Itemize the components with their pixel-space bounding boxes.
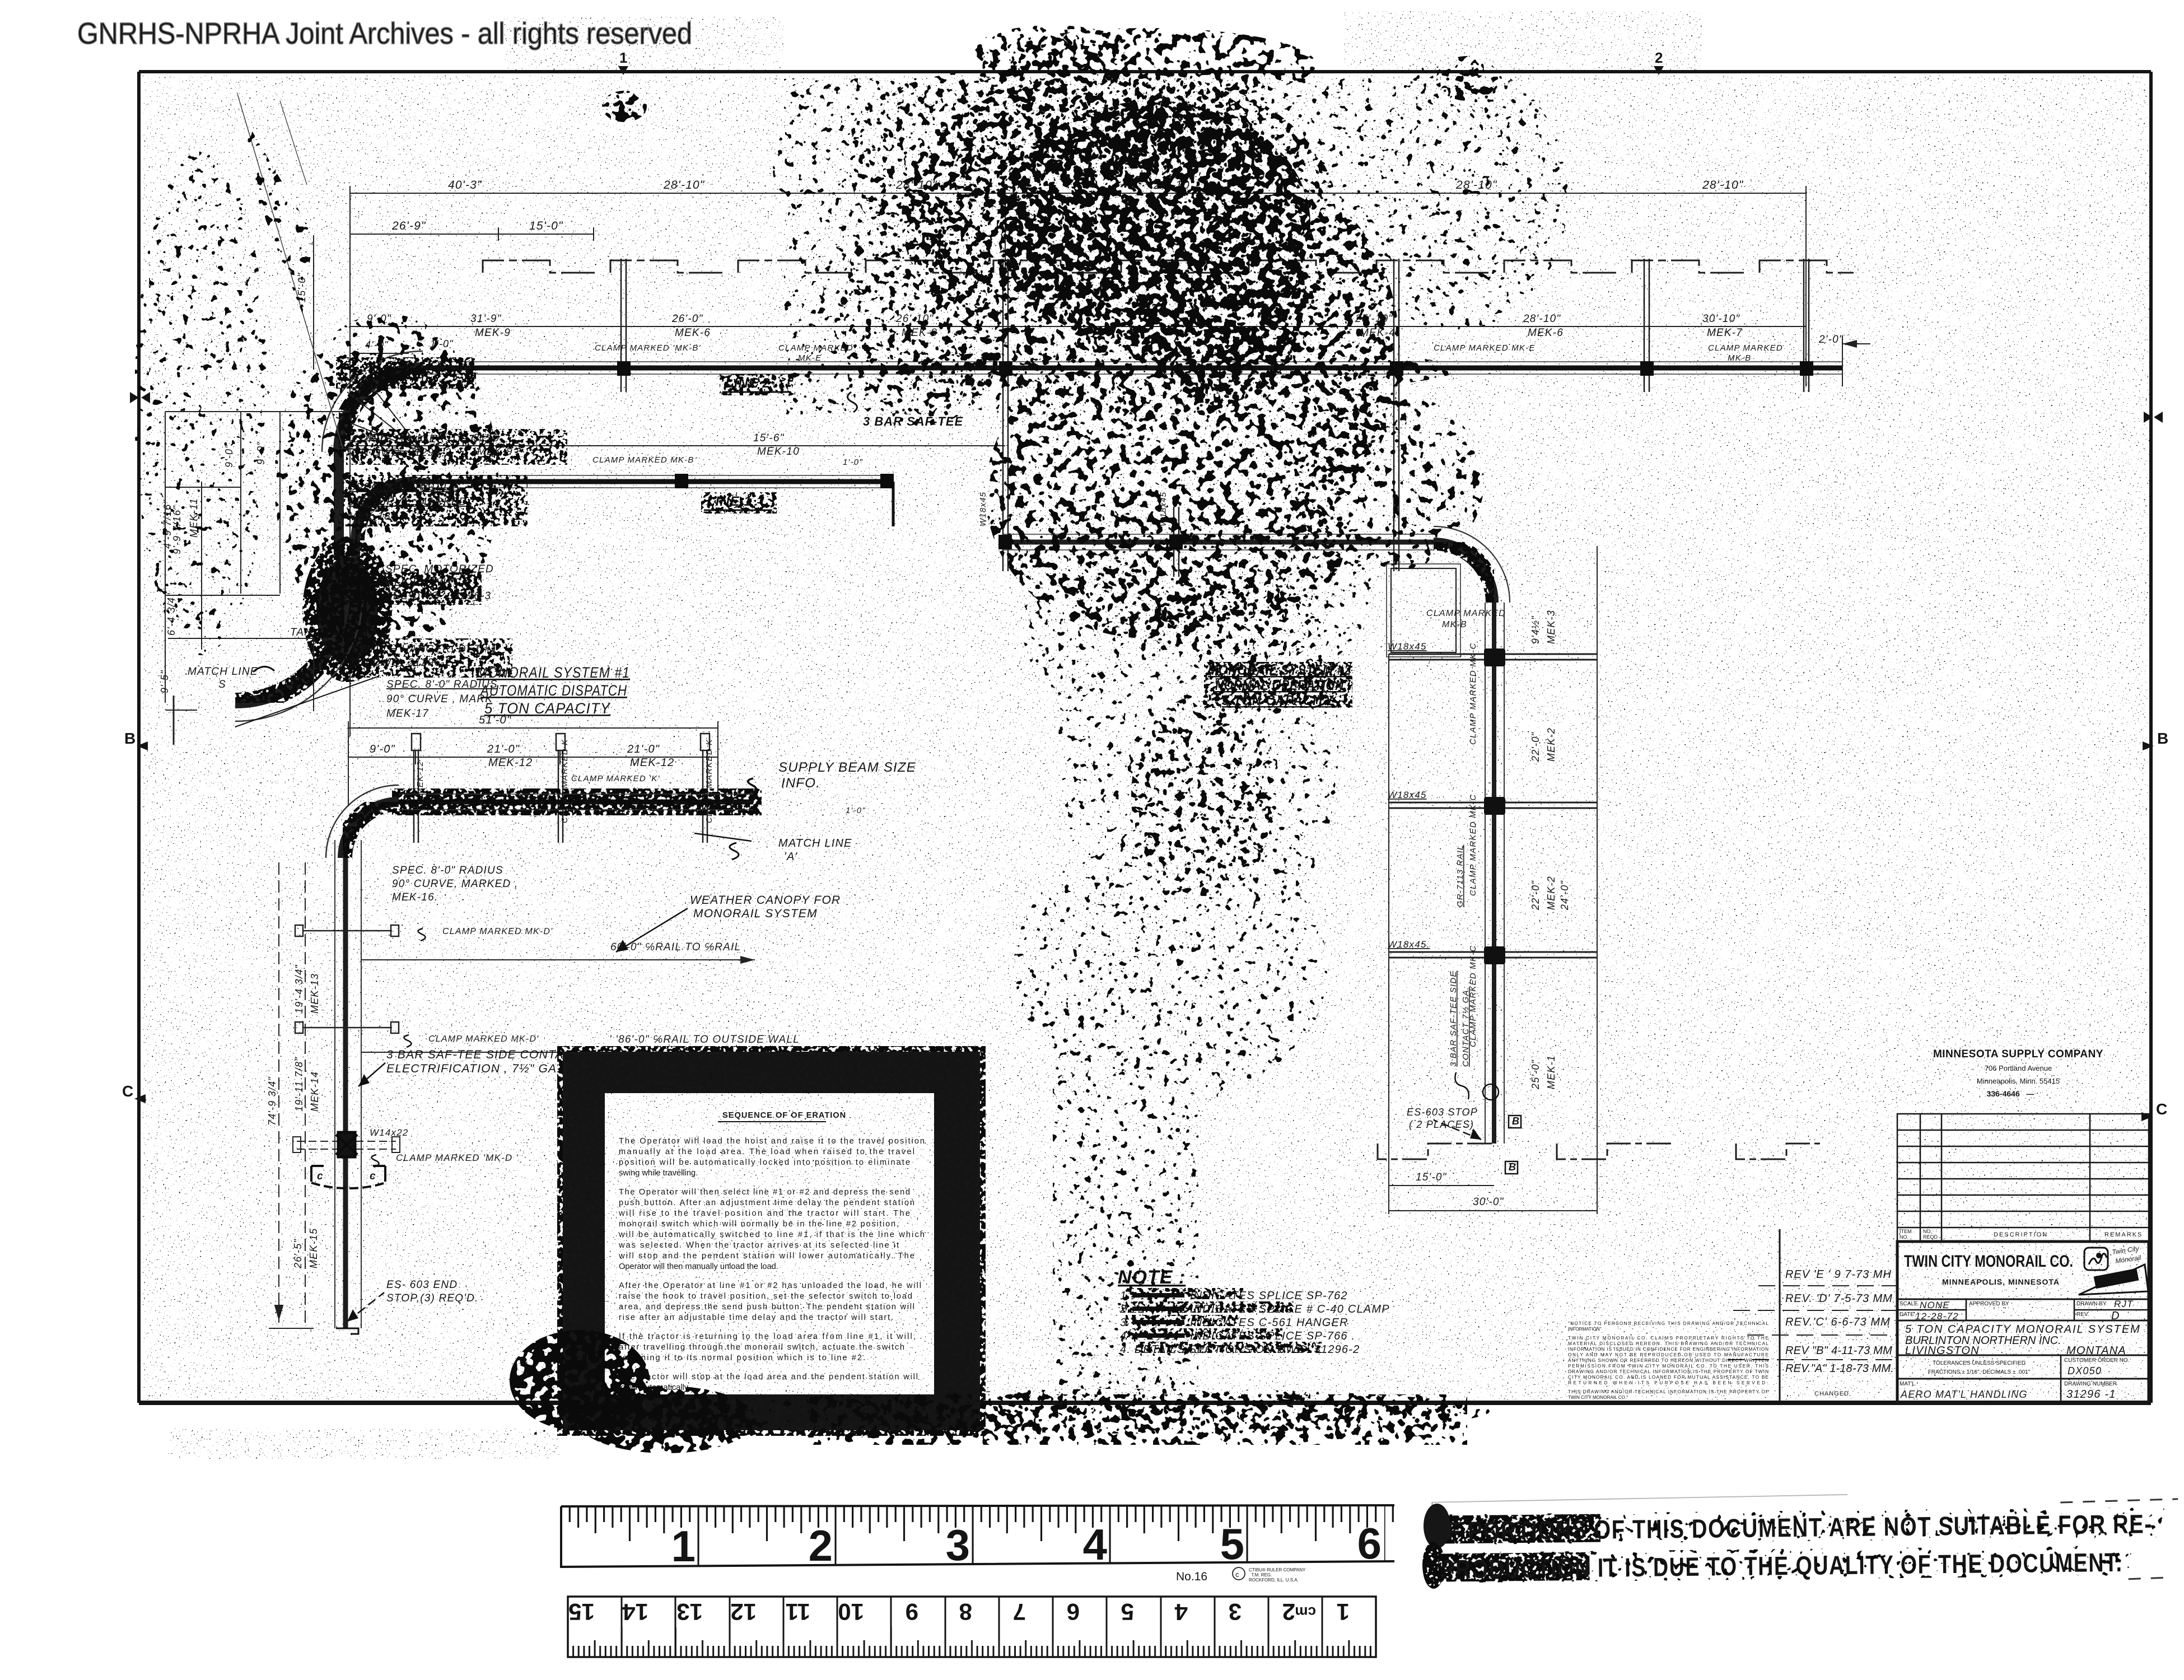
svg-text:4: 4 bbox=[1174, 1599, 1188, 1625]
svg-text:11: 11 bbox=[786, 1599, 810, 1625]
svg-text:cm: cm bbox=[1295, 1604, 1316, 1621]
svg-text:5: 5 bbox=[1220, 1519, 1244, 1569]
svg-text:6: 6 bbox=[1357, 1519, 1382, 1568]
svg-text:12: 12 bbox=[730, 1599, 757, 1625]
svg-text:C: C bbox=[122, 1082, 133, 1100]
svg-text:3: 3 bbox=[1229, 1599, 1242, 1625]
svg-text:8: 8 bbox=[959, 1599, 972, 1625]
svg-text:7: 7 bbox=[1013, 1599, 1026, 1625]
svg-text:1: 1 bbox=[1337, 1599, 1350, 1625]
svg-text:B: B bbox=[124, 730, 136, 747]
svg-text:B: B bbox=[2157, 730, 2168, 747]
svg-text:2: 2 bbox=[809, 1521, 833, 1570]
svg-text:T.M. REG.: T.M. REG. bbox=[1249, 1572, 1272, 1578]
svg-text:5: 5 bbox=[1121, 1599, 1134, 1625]
svg-text:ROCKFORD, ILL. U.S.A.: ROCKFORD, ILL. U.S.A. bbox=[1249, 1578, 1299, 1583]
svg-text:10: 10 bbox=[838, 1599, 864, 1625]
svg-text:6: 6 bbox=[1067, 1599, 1080, 1625]
svg-text:c: c bbox=[1235, 1570, 1239, 1579]
svg-text:15: 15 bbox=[568, 1599, 595, 1625]
svg-text:1: 1 bbox=[671, 1522, 696, 1571]
svg-text:No.16: No.16 bbox=[1176, 1570, 1207, 1583]
svg-text:14: 14 bbox=[622, 1599, 648, 1625]
svg-text:CTIBU® RULER COMPANY: CTIBU® RULER COMPANY bbox=[1249, 1567, 1306, 1572]
svg-text:4: 4 bbox=[1083, 1520, 1107, 1569]
svg-text:2: 2 bbox=[1282, 1599, 1295, 1625]
svg-text:13: 13 bbox=[676, 1599, 703, 1625]
svg-text:C: C bbox=[2156, 1100, 2167, 1118]
svg-text:3: 3 bbox=[946, 1520, 970, 1570]
svg-text:9: 9 bbox=[906, 1599, 918, 1625]
